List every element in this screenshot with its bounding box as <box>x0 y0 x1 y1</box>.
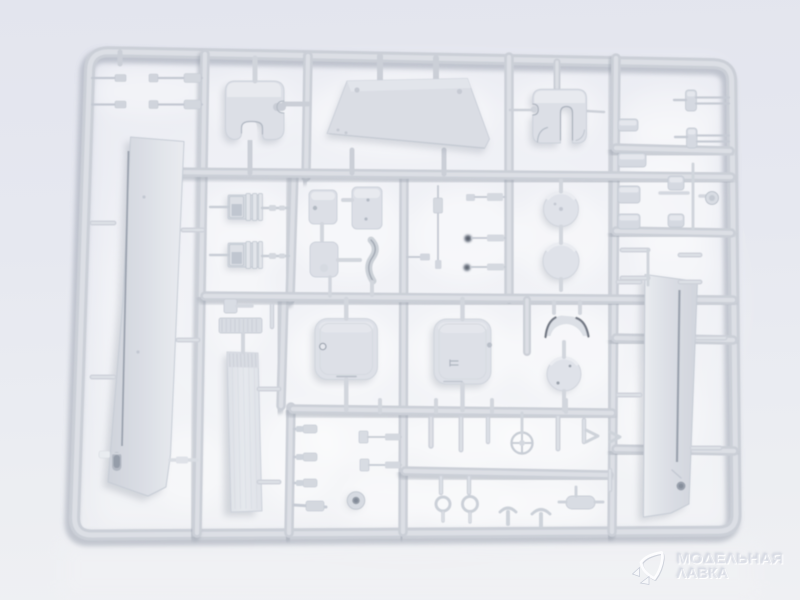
svg-text:ΛАВКА: ΛАВКА <box>676 565 728 582</box>
